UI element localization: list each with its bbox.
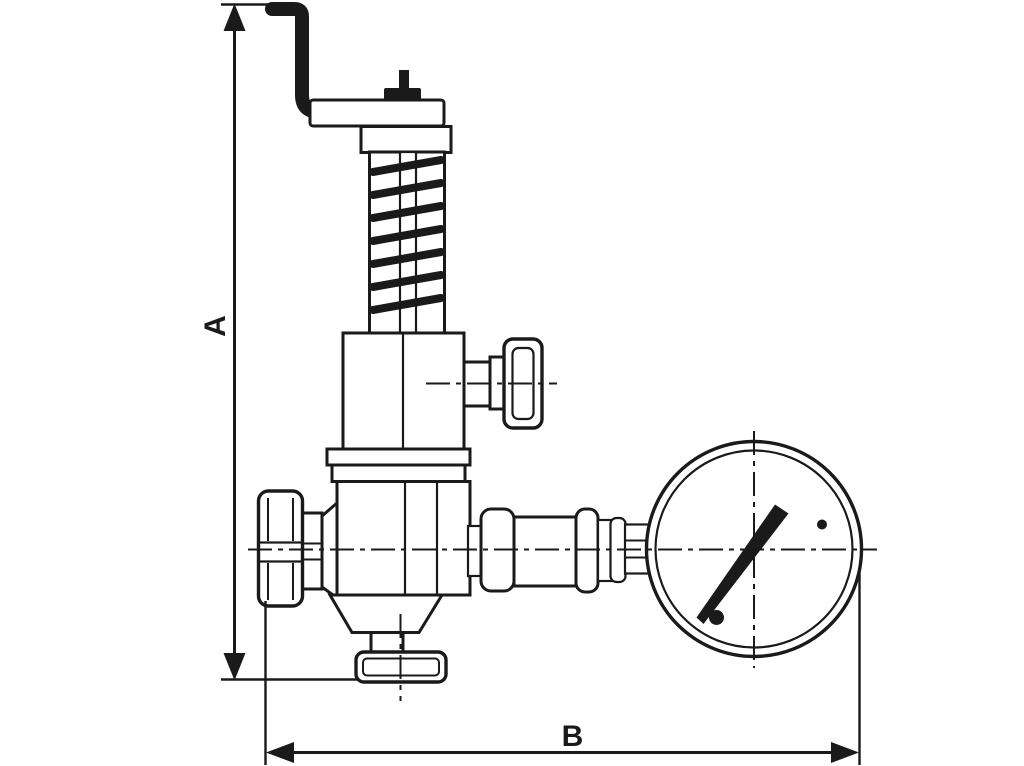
test-lever: [272, 9, 444, 126]
dimension-a-label: A: [199, 315, 232, 337]
dimension-b-label: B: [562, 720, 584, 753]
dimension-a-arrow-down: [224, 653, 246, 681]
valve-body: [302, 482, 470, 599]
dimension-b-arrow-left: [266, 742, 294, 763]
dimension-a-arrow-up: [224, 4, 246, 32]
bonnet-flange: [327, 449, 470, 482]
dimension-b-arrow-right: [831, 742, 859, 763]
body-cone: [330, 595, 442, 633]
spring-housing: [370, 152, 445, 333]
bonnet: [343, 333, 464, 449]
handwheel-stem: [302, 513, 322, 589]
gauge-pivot-dot: [709, 610, 724, 625]
gauge-scale-dot: [817, 520, 827, 530]
valve-drawing-svg: A B: [0, 0, 1024, 766]
adjusting-nut: [361, 127, 451, 153]
valve-base: [330, 595, 446, 682]
technical-drawing: A B: [0, 0, 1024, 766]
